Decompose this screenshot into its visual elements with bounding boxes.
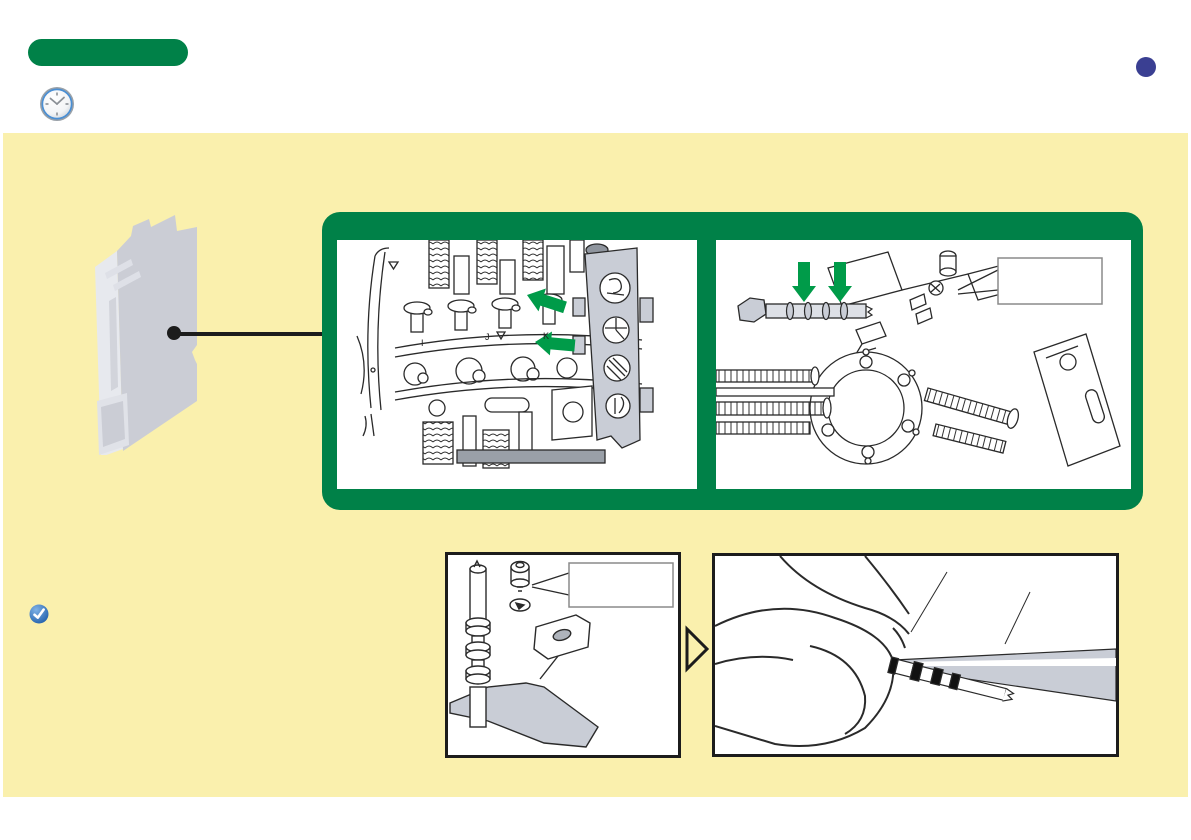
drum-mark-k: K [543,331,549,341]
ink-cartridge-illustration [85,205,235,455]
next-step-arrow [683,625,711,673]
step-box-parts [445,552,681,758]
detail-frame: I J K [322,212,1143,510]
blank-label-box [569,563,673,607]
thumb-outline [715,609,893,746]
screw-part [511,562,529,592]
callout-line [174,332,322,336]
washer-part [510,599,530,611]
blank-label-box [998,258,1102,304]
drum-mark-i: I [421,338,424,348]
clock-icon [39,86,75,122]
drum-mark-j: J [485,332,490,342]
shaft-part [466,561,490,727]
page-marker-dot [1136,57,1156,77]
green-arrows-right-panel [792,262,852,302]
detail-left-illustration: I J K [337,240,697,489]
manual-page: I J K [0,0,1191,840]
section-title-badge [28,39,188,66]
checkmark-icon [29,604,49,624]
detail-right-illustration [716,240,1131,489]
step-box-hand-tool [712,553,1119,757]
